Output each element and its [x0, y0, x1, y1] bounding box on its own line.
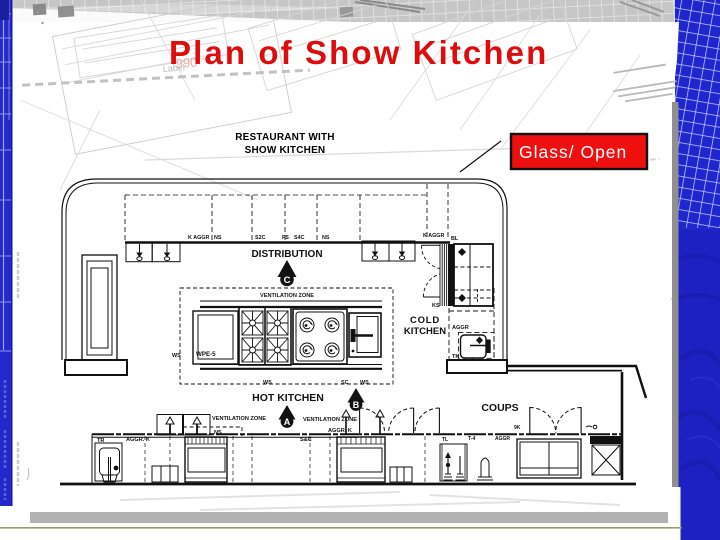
- svg-text:TL: TL: [442, 437, 448, 443]
- svg-text:AGGR. K: AGGR. K: [328, 428, 352, 434]
- svg-text:NS: NS: [322, 235, 330, 241]
- svg-text:A: A: [284, 417, 291, 427]
- svg-text:B: B: [353, 400, 360, 410]
- svg-text:COUPS: COUPS: [481, 402, 518, 414]
- svg-text:AGGR: AGGR: [495, 436, 510, 442]
- svg-text:K AGGR: K AGGR: [188, 235, 209, 241]
- svg-text:9K: 9K: [514, 425, 521, 431]
- svg-text:NS: NS: [214, 235, 222, 241]
- svg-text:BL: BL: [451, 236, 459, 242]
- svg-text:T-4: T-4: [468, 436, 475, 442]
- svg-text:KS: KS: [432, 303, 440, 309]
- svg-text:S&C: S&C: [300, 437, 312, 443]
- svg-text:VENTILATION ZONE: VENTILATION ZONE: [212, 416, 266, 422]
- svg-text:KITCHEN: KITCHEN: [404, 326, 446, 337]
- svg-text:VENTILATION ZONE: VENTILATION ZONE: [303, 417, 357, 423]
- svg-text:Glass/ Open: Glass/ Open: [519, 142, 627, 162]
- svg-text:AGGR. K: AGGR. K: [126, 437, 150, 443]
- svg-text:VENTILATION ZONE: VENTILATION ZONE: [260, 293, 314, 299]
- svg-text:RESTAURANT WITH: RESTAURANT WITH: [235, 132, 334, 143]
- svg-text:WS: WS: [172, 353, 181, 359]
- svg-text:COLD: COLD: [410, 315, 440, 326]
- svg-text:WS: WS: [360, 380, 369, 386]
- svg-text:C: C: [284, 275, 291, 286]
- svg-text:K AGGR: K AGGR: [423, 233, 444, 239]
- svg-text:AGGR: AGGR: [452, 325, 469, 331]
- svg-text:WS: WS: [263, 380, 272, 386]
- svg-text:S4C: S4C: [294, 235, 305, 241]
- svg-text:WPE-5: WPE-5: [196, 351, 216, 358]
- svg-text:SC: SC: [341, 380, 349, 386]
- svg-text:Plan of Show Kitchen: Plan of Show Kitchen: [169, 34, 548, 71]
- svg-text:HOT KITCHEN: HOT KITCHEN: [252, 392, 324, 404]
- svg-text:S2C: S2C: [255, 235, 266, 241]
- svg-text:SHOW KITCHEN: SHOW KITCHEN: [245, 145, 326, 156]
- svg-text:DISTRIBUTION: DISTRIBUTION: [251, 249, 322, 260]
- svg-text:FS: FS: [282, 235, 289, 241]
